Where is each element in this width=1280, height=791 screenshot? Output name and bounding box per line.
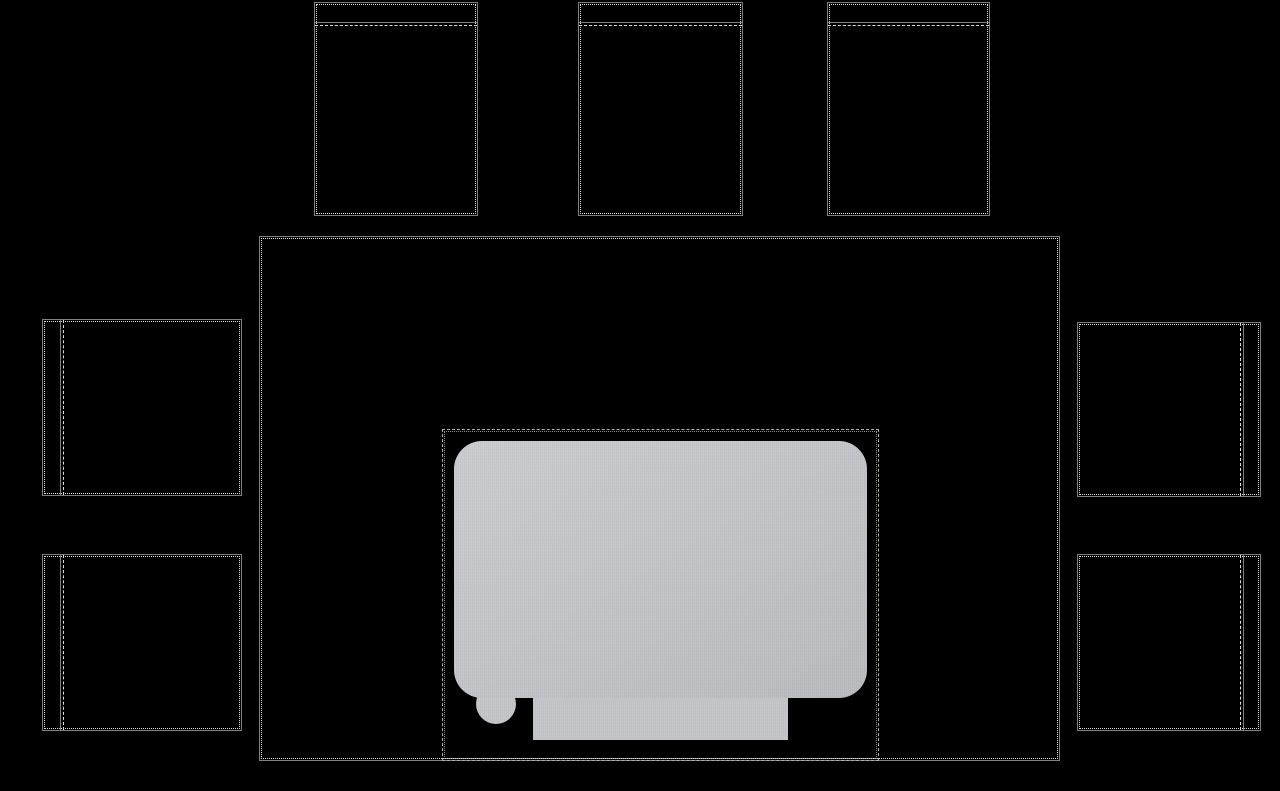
chair-top-1-backrest-divider xyxy=(315,22,477,26)
chair-left-1[interactable] xyxy=(42,319,242,496)
chair-right-1-backrest-divider xyxy=(1240,323,1244,496)
chair-right-2[interactable] xyxy=(1077,554,1261,731)
chair-right-2-backrest-divider xyxy=(1240,555,1244,730)
chair-top-3-backrest-divider xyxy=(828,22,989,26)
chair-top-2-backrest-divider xyxy=(579,22,742,26)
room-canvas xyxy=(0,0,1280,791)
object-bottom-tab xyxy=(533,697,788,740)
chair-top-1[interactable] xyxy=(314,2,478,216)
chair-top-2[interactable] xyxy=(578,2,743,216)
chair-right-1[interactable] xyxy=(1077,322,1261,497)
gray-object-body[interactable] xyxy=(454,441,867,698)
chair-left-1-backrest-divider xyxy=(60,320,64,495)
chair-top-3[interactable] xyxy=(827,2,990,216)
chair-left-2-backrest-divider xyxy=(60,555,64,730)
chair-left-2[interactable] xyxy=(42,554,242,731)
